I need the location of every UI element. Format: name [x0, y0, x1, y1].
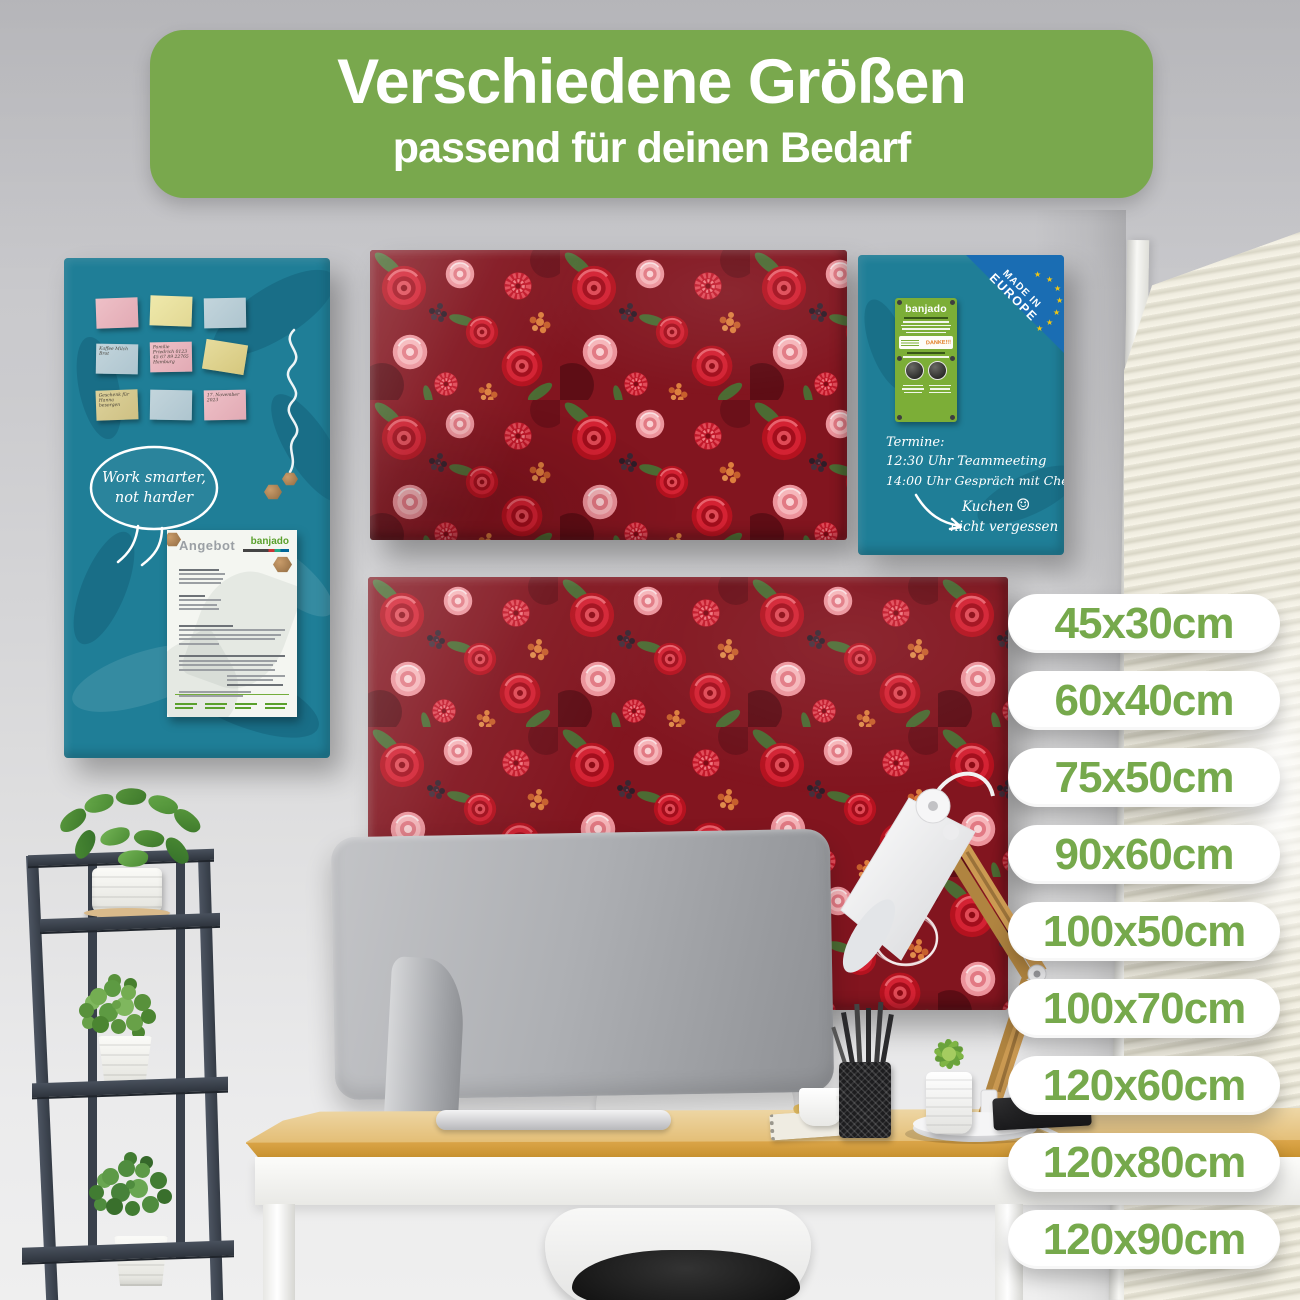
banjado-logo: banjado: [251, 536, 289, 547]
footer-divider: [175, 694, 289, 696]
thanks-text: DANKE!!!: [926, 339, 951, 346]
monitor-stand-foot: [436, 1110, 671, 1130]
sticky-note-text: 17. November 2023: [204, 390, 246, 407]
magnet-dot: [950, 356, 955, 361]
sticky-note: [202, 339, 248, 375]
document-table: [179, 652, 287, 673]
size-label: 120x90cm: [1043, 1215, 1245, 1265]
sticky-note: Geschenk für Hanna besorgen: [95, 389, 138, 420]
scene: Kaffee Milch Brot Familie Friedrich 0123…: [0, 0, 1300, 1300]
size-label: 100x50cm: [1043, 907, 1245, 957]
eu-star-icon: ★: [1056, 297, 1063, 305]
eu-star-icon: ★: [1053, 309, 1060, 317]
sticky-note: Kaffee Milch Brot: [96, 344, 139, 375]
size-label: 60x40cm: [1055, 676, 1234, 726]
document-title: Angebot: [179, 538, 235, 553]
size-pill: 100x70cm: [1008, 979, 1280, 1038]
lamp-cable: [937, 774, 993, 796]
size-pill: 120x90cm: [1008, 1210, 1280, 1269]
magnet-dot: [950, 415, 955, 420]
banner-title: Verschiedene Größen: [150, 46, 1153, 118]
mesh-pen-cup: [839, 1062, 891, 1138]
document-footer: [175, 701, 289, 712]
magnet-dot: [950, 300, 955, 305]
sticky-note: [95, 297, 138, 328]
eu-star-icon: ★: [1046, 319, 1053, 327]
cake-note-line1: Kuchen: [962, 499, 1013, 515]
size-label: 100x70cm: [1043, 984, 1245, 1034]
sticky-note: [204, 298, 247, 329]
cake-note-line2: nicht vergessen: [950, 519, 1058, 535]
desk-leg-left: [263, 1204, 295, 1300]
size-pill: 90x60cm: [1008, 825, 1280, 884]
succulent-pot: [926, 1072, 972, 1134]
sticky-note: 17. November 2023: [204, 390, 247, 421]
sticky-note-text: Geschenk für Hanna besorgen: [95, 389, 138, 411]
thanks-box: DANKE!!!: [899, 336, 953, 349]
sticky-note: [149, 295, 192, 326]
document-totals: [227, 672, 287, 688]
headline-banner: Verschiedene Größen passend für deinen B…: [150, 30, 1153, 198]
size-label: 120x60cm: [1043, 1061, 1245, 1111]
bush-plant-bottom: [126, 1180, 135, 1189]
size-pill: 100x50cm: [1008, 902, 1280, 961]
smiley-icon: ☺: [1016, 495, 1030, 514]
eu-star-icon: ★: [1034, 271, 1041, 279]
bubble-text-line2: not harder: [94, 490, 214, 506]
termine-line1: Termine:: [886, 435, 945, 450]
document-text-block: [179, 566, 227, 587]
banner-subtitle: passend für deinen Bedarf: [150, 124, 1153, 173]
size-label: 45x30cm: [1055, 599, 1234, 649]
size-pill: 75x50cm: [1008, 748, 1280, 807]
bubble-text-line1: Work smarter,: [94, 470, 214, 486]
dog-photo: [905, 361, 924, 380]
magnet-dot: [897, 300, 902, 305]
size-pill: 120x80cm: [1008, 1133, 1280, 1192]
glass-shine: [370, 250, 847, 540]
banjado-logo: banjado: [895, 303, 957, 315]
magnet-dot: [897, 415, 902, 420]
size-label: 75x50cm: [1055, 753, 1234, 803]
offer-document: Angebot banjado: [167, 530, 297, 717]
product-label-card: banjado DANKE!!!: [895, 298, 957, 422]
document-text-block: [179, 592, 227, 613]
termine-line3: 14:00 Uhr Gespräch mit Chefin: [886, 473, 1064, 488]
bush-plant-middle: [112, 1000, 121, 1009]
size-pill: 45x30cm: [1008, 594, 1280, 653]
sticky-note: [150, 390, 193, 421]
sticky-note-text: Kaffee Milch Brot: [96, 344, 138, 361]
squiggle-doodle: [282, 326, 312, 476]
logo-tagline-bar: [243, 549, 289, 552]
termine-line2: 12:30 Uhr Teammeeting: [886, 454, 1047, 469]
memo-board-small: MADE IN EUROPE ★ ★ ★ ★ ★ ★ ★ banjado DAN…: [858, 255, 1064, 555]
fine-print: [901, 340, 919, 346]
size-label: 120x80cm: [1043, 1138, 1245, 1188]
flower-board-small: [370, 250, 847, 540]
size-pill: 60x40cm: [1008, 671, 1280, 730]
sticky-note: Familie Friedrich 0123 45 67 89 22765 Ha…: [150, 342, 193, 373]
document-text-block: [179, 622, 287, 647]
eu-star-icon: ★: [1036, 325, 1043, 333]
eu-star-icon: ★: [1046, 276, 1053, 284]
monitor-stand-column: [384, 956, 467, 1125]
size-pill: 120x60cm: [1008, 1056, 1280, 1115]
dog-photo: [928, 361, 947, 380]
memo-board-large: Kaffee Milch Brot Familie Friedrich 0123…: [64, 258, 330, 758]
contact-columns: [895, 383, 957, 396]
eu-star-icon: ★: [1054, 285, 1061, 293]
sticky-note-text: Familie Friedrich 0123 45 67 89 22765 Ha…: [150, 342, 192, 369]
size-label: 90x60cm: [1055, 830, 1234, 880]
magnet-dot: [897, 356, 902, 361]
team-photos: [895, 361, 957, 380]
cork-hex-magnet: [273, 556, 292, 573]
